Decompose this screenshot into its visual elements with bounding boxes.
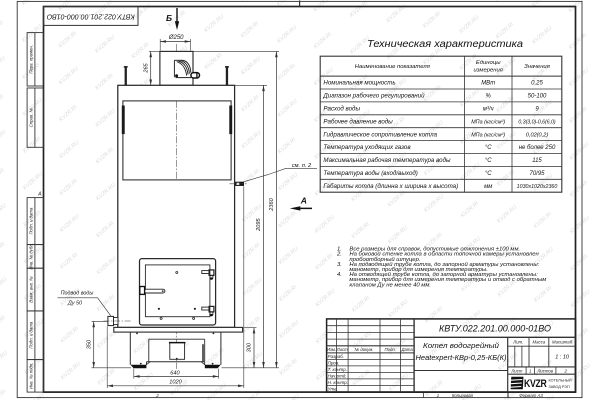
svg-text:Подп.: Подп. <box>384 347 395 352</box>
svg-text:Значения: Значения <box>524 64 551 70</box>
svg-text:Габариты котла (длинна х ширин: Габариты котла (длинна х ширина х высота… <box>323 183 458 190</box>
svg-text:Б: Б <box>166 13 172 23</box>
svg-text:°С: °С <box>485 145 492 151</box>
svg-text:Температура воды (вход/выход): Температура воды (вход/выход) <box>323 170 417 177</box>
svg-text:Единоцы: Единоцы <box>476 60 501 66</box>
svg-text:Подвод воды: Подвод воды <box>61 291 94 297</box>
svg-text:Масштаб: Масштаб <box>552 340 573 345</box>
svg-text:0,02(0,2): 0,02(0,2) <box>526 132 549 138</box>
svg-text:Расход воды: Расход воды <box>323 106 360 113</box>
svg-text:КВТУ.022.201.00.000-01ВО: КВТУ.022.201.00.000-01ВО <box>46 13 135 20</box>
svg-text:Взам. инв. №: Взам. инв. № <box>29 276 34 303</box>
svg-text:Heatexpert-КВр-0,25-КБ(К): Heatexpert-КВр-0,25-КБ(К) <box>416 353 507 362</box>
svg-text:0,25: 0,25 <box>531 81 543 87</box>
svg-text:Т. контр.: Т. контр. <box>328 367 347 372</box>
svg-text:Подп. и дата: Подп. и дата <box>29 207 34 235</box>
svg-text:2: 2 <box>564 368 568 373</box>
svg-text:3.: 3. <box>337 262 342 268</box>
svg-text:Масса: Масса <box>533 340 546 345</box>
svg-text:ЗАВОД РЭП: ЗАВОД РЭП <box>549 385 570 389</box>
svg-text:Н. контр.: Н. контр. <box>328 380 348 385</box>
svg-text:0,3(3,0)-0,6(6,0): 0,3(3,0)-0,6(6,0) <box>518 119 555 125</box>
svg-text:КОТЕЛЬНЫЙ: КОТЕЛЬНЫЙ <box>549 379 572 383</box>
svg-text:2095: 2095 <box>256 217 262 231</box>
svg-text:МПа (кгс/см²): МПа (кгс/см²) <box>471 119 505 125</box>
svg-text:А: А <box>37 192 42 198</box>
svg-text:Лит.: Лит. <box>512 340 523 345</box>
svg-text:Ду 50: Ду 50 <box>67 301 82 307</box>
svg-text:Диапазон рабочего регулировани: Диапазон рабочего регулирований <box>322 93 425 100</box>
svg-text:265: 265 <box>143 62 149 73</box>
svg-text:Справ. №: Справ. № <box>29 107 34 127</box>
svg-text:1020: 1020 <box>169 380 182 386</box>
svg-text:Лист: Лист <box>510 368 522 373</box>
svg-text:Копировал: Копировал <box>452 393 474 398</box>
svg-text:Номинальная мощность: Номинальная мощность <box>323 80 395 87</box>
svg-text:Изм.: Изм. <box>327 347 336 352</box>
svg-text:Котел водогрейный: Котел водогрейный <box>423 341 500 350</box>
svg-text:Пров.: Пров. <box>328 361 340 366</box>
svg-text:2: 2 <box>155 393 159 398</box>
svg-text:Листов: Листов <box>536 368 553 373</box>
svg-text:°С: °С <box>485 158 492 164</box>
svg-text:Нач.отд.: Нач.отд. <box>328 374 347 379</box>
svg-text:1 : 10: 1 : 10 <box>555 355 570 361</box>
svg-text:МПа (кгс/см²): МПа (кгс/см²) <box>471 132 505 138</box>
svg-text:КВТУ.022.201.00.000-01ВО: КВТУ.022.201.00.000-01ВО <box>439 324 551 334</box>
svg-text:Разраб.: Разраб. <box>328 354 344 359</box>
svg-text:клапаном Ду не менее 40 мм.: клапаном Ду не менее 40 мм. <box>349 282 431 288</box>
svg-text:2.: 2. <box>336 252 342 258</box>
svg-text:м³/ч: м³/ч <box>483 107 494 113</box>
svg-text:не более 250: не более 250 <box>519 145 556 151</box>
svg-text:мм: мм <box>484 184 492 190</box>
svg-text:Подп. и дата: Подп. и дата <box>29 321 34 349</box>
svg-text:1030х1020х2360: 1030х1020х2360 <box>517 184 558 190</box>
svg-text:Ø250: Ø250 <box>168 35 184 41</box>
svg-text:Техническая характеристика: Техническая характеристика <box>367 39 523 50</box>
svg-text:4.: 4. <box>337 272 342 278</box>
svg-text:350: 350 <box>86 339 92 349</box>
svg-text:115: 115 <box>532 158 542 164</box>
svg-text:№ докум.: № докум. <box>355 347 374 352</box>
svg-text:см. п. 2: см. п. 2 <box>292 163 312 169</box>
svg-text:2360: 2360 <box>269 197 275 211</box>
svg-text:Перв. примен.: Перв. примен. <box>29 45 34 74</box>
svg-text:°С: °С <box>485 171 492 177</box>
svg-text:Максимальная рабочая температу: Максимальная рабочая температура воды <box>323 157 451 164</box>
svg-text:70/95: 70/95 <box>529 171 545 177</box>
svg-text:Утв.: Утв. <box>328 387 338 392</box>
svg-text:А: А <box>300 196 307 206</box>
svg-text:Инв. № дубл.: Инв. № дубл. <box>29 243 34 269</box>
svg-text:Наименование показателя: Наименование показателя <box>355 64 431 70</box>
svg-text:Рабочее давление воды: Рабочее давление воды <box>323 118 393 125</box>
svg-text:Формат А3: Формат А3 <box>519 393 543 398</box>
svg-text:Гидравлическое сопротивление к: Гидравлическое сопротивление котла <box>323 131 437 138</box>
svg-text:Температура уходящих газов: Температура уходящих газов <box>323 144 411 151</box>
svg-text:МВт: МВт <box>481 81 495 87</box>
svg-text:измерения: измерения <box>473 68 503 74</box>
svg-text:Лист: Лист <box>336 347 348 352</box>
svg-text:50-100: 50-100 <box>528 94 547 100</box>
svg-text:640: 640 <box>170 370 180 376</box>
svg-text:Дата: Дата <box>401 347 414 352</box>
svg-text:Инв. № подл.: Инв. № подл. <box>29 362 34 389</box>
svg-text:300: 300 <box>247 342 253 352</box>
svg-text:KVZR: KVZR <box>524 378 547 390</box>
svg-text:%: % <box>486 94 492 100</box>
